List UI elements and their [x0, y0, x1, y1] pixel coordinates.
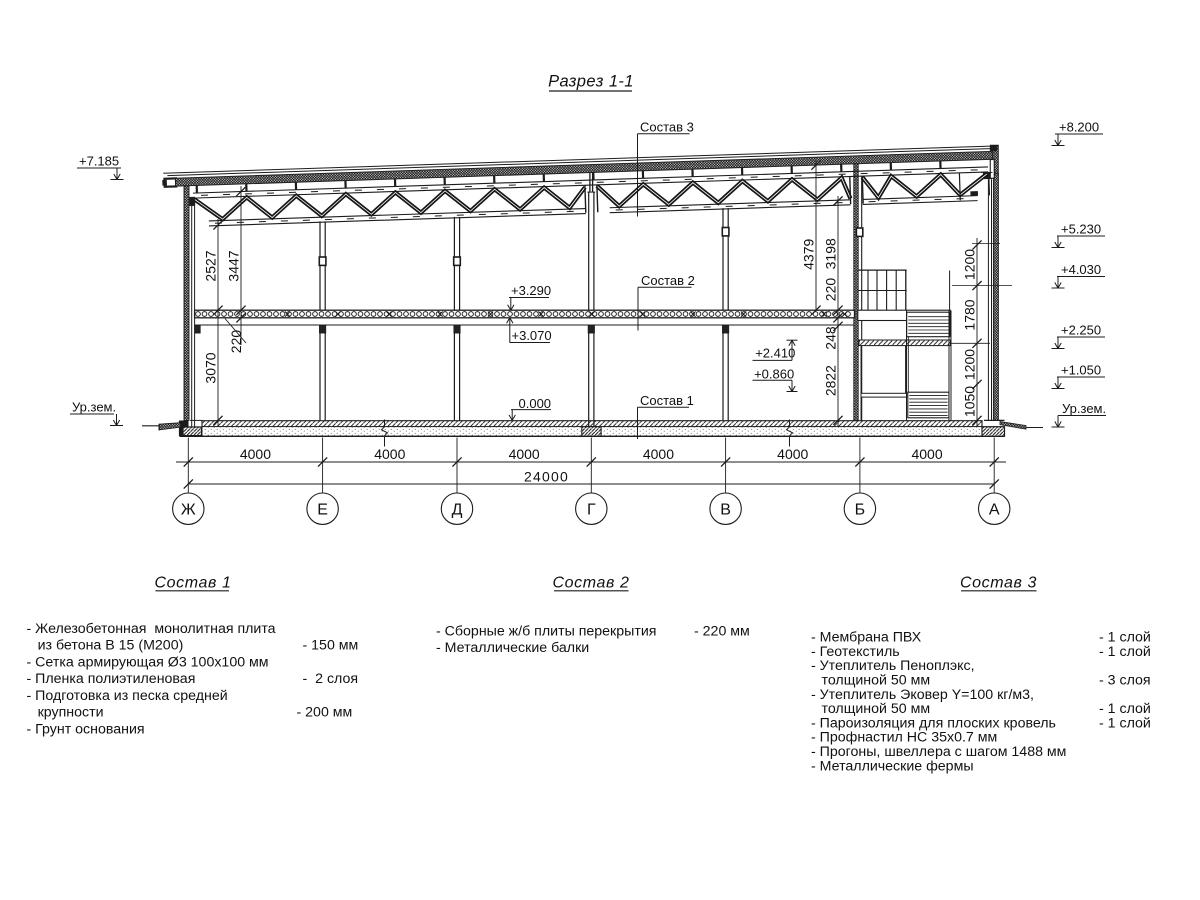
svg-text:- Сборные ж/б плиты перекрытия: - Сборные ж/б плиты перекрытия	[436, 623, 656, 639]
svg-text:1200: 1200	[962, 349, 978, 380]
svg-text:4000: 4000	[374, 446, 405, 462]
svg-text:+8.200: +8.200	[1059, 120, 1099, 135]
svg-text:- 3 слоя: - 3 слоя	[1099, 673, 1151, 689]
svg-text:А: А	[989, 502, 1000, 519]
svg-text:- 2 слоя: - 2 слоя	[303, 671, 359, 687]
svg-text:4000: 4000	[643, 446, 674, 462]
svg-text:+1.050: +1.050	[1061, 363, 1101, 378]
svg-text:- Металлические балки: - Металлические балки	[436, 640, 589, 656]
svg-text:3070: 3070	[203, 352, 219, 383]
svg-text:4000: 4000	[240, 446, 271, 462]
svg-text:1050: 1050	[962, 386, 978, 417]
svg-text:+7.185: +7.185	[79, 154, 119, 169]
svg-text:2822: 2822	[823, 365, 839, 396]
svg-text:3447: 3447	[226, 250, 242, 281]
svg-text:Состав 1: Состав 1	[155, 575, 232, 592]
svg-text:3198: 3198	[823, 238, 839, 269]
svg-text:+5.230: +5.230	[1061, 222, 1101, 237]
svg-text:220: 220	[228, 330, 244, 354]
svg-text:Е: Е	[317, 502, 328, 519]
svg-text:- Подготовка из песка средней: - Подготовка из песка средней	[27, 688, 228, 704]
svg-text:Состав 3: Состав 3	[960, 575, 1037, 592]
svg-text:из бетона В 15 (М200): из бетона В 15 (М200)	[38, 638, 184, 654]
svg-text:0.000: 0.000	[519, 396, 552, 411]
svg-text:Г: Г	[587, 502, 596, 519]
svg-text:+3.070: +3.070	[512, 328, 552, 343]
svg-text:+2.250: +2.250	[1061, 323, 1101, 338]
svg-text:- Железобетонная монолитная п: - Железобетонная монолитная плита	[27, 621, 276, 637]
svg-text:Состав 1: Состав 1	[640, 393, 694, 408]
svg-text:- Сетка армирующая Ø3 100х100: - Сетка армирующая Ø3 100х100 мм	[27, 654, 269, 670]
svg-text:Ж: Ж	[181, 502, 196, 519]
svg-text:Ур.зем.: Ур.зем.	[72, 400, 116, 415]
svg-text:+3.290: +3.290	[511, 283, 551, 298]
svg-text:24000: 24000	[524, 469, 569, 485]
svg-text:Состав 3: Состав 3	[640, 119, 694, 134]
svg-text:Состав 2: Состав 2	[553, 575, 630, 592]
svg-text:крупности: крупности	[38, 705, 104, 721]
svg-text:Состав 2: Состав 2	[641, 273, 695, 288]
svg-text:1780: 1780	[962, 299, 978, 330]
svg-text:- 1 слой: - 1 слой	[1099, 644, 1151, 660]
svg-text:1200: 1200	[962, 249, 978, 280]
svg-text:В: В	[720, 502, 731, 519]
svg-text:4000: 4000	[777, 446, 808, 462]
svg-text:- 150 мм: - 150 мм	[303, 638, 359, 654]
svg-text:Б: Б	[855, 502, 866, 519]
svg-text:- Грунт основания: - Грунт основания	[27, 721, 145, 737]
svg-text:4000: 4000	[509, 446, 540, 462]
svg-text:248: 248	[823, 326, 839, 350]
svg-text:+4.030: +4.030	[1061, 262, 1101, 277]
svg-text:+2.410: +2.410	[755, 346, 795, 361]
svg-text:Разрез 1-1: Разрез 1-1	[548, 73, 634, 91]
svg-text:Д: Д	[452, 502, 463, 519]
svg-text:2527: 2527	[203, 250, 219, 281]
svg-text:- 220 мм: - 220 мм	[694, 623, 750, 639]
svg-text:4000: 4000	[911, 446, 942, 462]
svg-text:- Металлические фермы: - Металлические фермы	[811, 758, 974, 774]
svg-text:+0.860: +0.860	[754, 367, 794, 382]
svg-text:- Пленка полиэтиленовая: - Пленка полиэтиленовая	[27, 671, 196, 687]
svg-text:220: 220	[823, 278, 839, 302]
svg-text:4379: 4379	[801, 239, 817, 270]
svg-text:Ур.зем.: Ур.зем.	[1062, 401, 1106, 416]
svg-text:- 200 мм: - 200 мм	[297, 705, 353, 721]
svg-text:- 1 слой: - 1 слой	[1099, 715, 1151, 731]
